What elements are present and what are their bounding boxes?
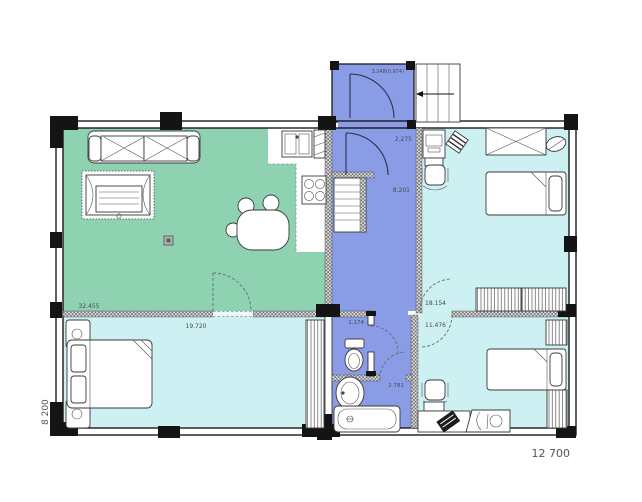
fridge (314, 130, 325, 158)
bedroom-top-right-area-label: 18.154 (425, 300, 446, 307)
washbasin (336, 377, 364, 409)
height-dimension: 8 200 (41, 399, 51, 425)
exterior-stairs (416, 64, 460, 122)
double-bed (67, 340, 152, 408)
kitchen-sink (282, 131, 312, 157)
floor-plan-canvas: 3.248(0.974) 2.275 8.201 32.455 19.720 1… (0, 0, 642, 502)
entry-hall-area-label: 2.275 (395, 136, 412, 143)
hall-opening-1 (374, 172, 416, 178)
wardrobe-right-bottom (547, 390, 567, 428)
partition-living-bedL-b (253, 311, 325, 317)
partition-bedroom-corridor (325, 313, 332, 428)
partition-living-hall (325, 128, 332, 313)
cradle (466, 410, 510, 432)
stove (302, 176, 326, 204)
entry-hall-floor (332, 128, 416, 172)
single-bed-bottom (487, 349, 566, 390)
sofa (88, 131, 200, 163)
hallway-wardrobe (334, 178, 366, 232)
width-dimension: 12 700 (532, 447, 571, 460)
lobby-floor (374, 315, 411, 375)
wardrobe-bottom-wall (476, 288, 566, 311)
single-bed-top (486, 172, 566, 215)
bedroom-door-opening (420, 311, 452, 317)
partition-entry-hallway (332, 172, 374, 178)
dresser (424, 402, 444, 411)
partition-right-a (452, 311, 569, 317)
partition-hall-bedroomTR (416, 128, 422, 313)
bath-door-opening (380, 375, 406, 381)
partition-living-bedL-a (63, 311, 213, 317)
bathroom-area-label: 2.781 (388, 383, 404, 389)
living-area-label: 32.455 (79, 303, 100, 310)
wc-door-opening (368, 325, 374, 352)
partition-bath-bedroomBR (411, 315, 418, 428)
toilet (345, 339, 364, 371)
bathtub (334, 406, 400, 432)
partition-lobby-bath-b (406, 375, 412, 381)
wardrobe-crossed (486, 128, 546, 155)
bedroom-left-area-label: 19.720 (186, 323, 207, 330)
floor-plan-drawing: 3.248(0.974) 2.275 8.201 32.455 19.720 1… (0, 0, 642, 502)
bedroom-bottom-right-area-label: 11.476 (425, 322, 446, 329)
wc-area-label: 1.174 (348, 320, 364, 326)
porch-area-label: 3.248(0.974) (371, 69, 404, 75)
bedroom-left-wardrobe (306, 320, 324, 428)
hallway-area-label: 8.201 (393, 187, 410, 194)
desk-with-monitor (423, 130, 445, 166)
wardrobe-right-top (546, 320, 567, 345)
wc-partition-a (368, 315, 374, 325)
floor-hatch (164, 236, 173, 245)
desk-with-laptop (418, 410, 470, 432)
